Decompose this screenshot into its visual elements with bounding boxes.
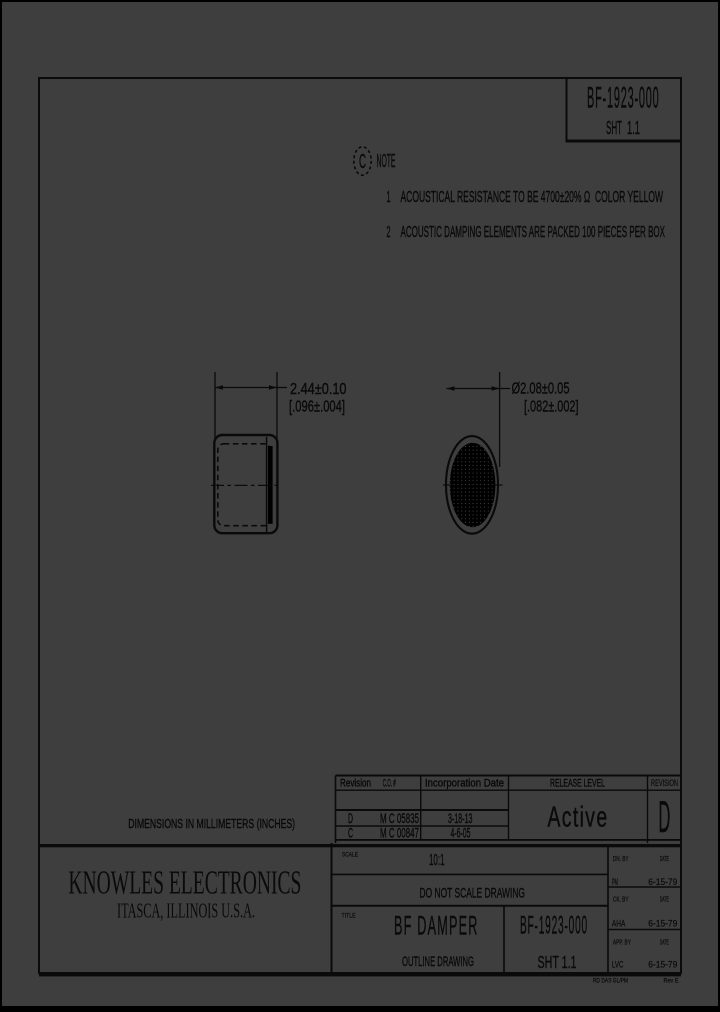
svg-text:2.44±0.10: 2.44±0.10 bbox=[290, 380, 347, 398]
svg-text:DATE: DATE bbox=[660, 895, 669, 904]
svg-text:M C 05835: M C 05835 bbox=[380, 811, 419, 826]
svg-text:BF DAMPER: BF DAMPER bbox=[394, 909, 479, 940]
svg-text:RD DAS GL/PM: RD DAS GL/PM bbox=[593, 977, 628, 984]
svg-text:ACOUSTICAL RESISTANCE TO BE 47: ACOUSTICAL RESISTANCE TO BE 4700±20% Ω C… bbox=[401, 188, 664, 206]
svg-text:2: 2 bbox=[387, 223, 391, 241]
svg-text:APP. BY: APP. BY bbox=[613, 938, 631, 947]
svg-text:Ø2.08±0.05: Ø2.08±0.05 bbox=[512, 380, 570, 398]
svg-text:PM: PM bbox=[612, 877, 618, 888]
svg-text:Incorporation Date: Incorporation Date bbox=[425, 778, 504, 790]
svg-text:SHT 1.1: SHT 1.1 bbox=[538, 952, 577, 972]
svg-text:C: C bbox=[359, 151, 366, 173]
svg-text:AHA: AHA bbox=[612, 918, 626, 929]
svg-text:1.1: 1.1 bbox=[627, 117, 640, 138]
svg-text:D: D bbox=[348, 811, 353, 826]
svg-text:M C 00847: M C 00847 bbox=[380, 826, 419, 841]
svg-text:OUTLINE DRAWING: OUTLINE DRAWING bbox=[402, 954, 474, 969]
svg-text:LVC: LVC bbox=[612, 960, 624, 971]
svg-text:6-15-79: 6-15-79 bbox=[648, 877, 677, 888]
svg-text:DATE: DATE bbox=[660, 938, 669, 947]
svg-text:C: C bbox=[348, 826, 353, 841]
svg-text:DO NOT SCALE DRAWING: DO NOT SCALE DRAWING bbox=[420, 886, 526, 901]
svg-text:REVISION: REVISION bbox=[651, 778, 678, 789]
svg-text:BF-1923-000: BF-1923-000 bbox=[587, 82, 660, 115]
svg-text:KNOWLES ELECTRONICS: KNOWLES ELECTRONICS bbox=[68, 865, 301, 902]
svg-text:ACOUSTIC DAMPING ELEMENTS ARE: ACOUSTIC DAMPING ELEMENTS ARE PACKED 100… bbox=[401, 223, 666, 241]
svg-text:Rev E: Rev E bbox=[664, 977, 679, 984]
svg-text:3-18-13: 3-18-13 bbox=[448, 811, 473, 826]
svg-text:4-6-05: 4-6-05 bbox=[451, 826, 471, 841]
svg-text:DIMENSIONS IN MILLIMETERS (INC: DIMENSIONS IN MILLIMETERS (INCHES) bbox=[128, 816, 295, 831]
svg-text:Active: Active bbox=[548, 802, 609, 834]
svg-text:TITLE: TITLE bbox=[342, 912, 356, 919]
svg-text:6-15-79: 6-15-79 bbox=[648, 960, 677, 971]
svg-text:NOTE: NOTE bbox=[377, 151, 396, 171]
svg-text:RELEASE LEVEL: RELEASE LEVEL bbox=[550, 778, 605, 790]
svg-text:BF-1923-000: BF-1923-000 bbox=[520, 912, 588, 940]
svg-text:6-15-79: 6-15-79 bbox=[648, 918, 677, 929]
svg-text:ITASCA, ILLINOIS U.S.A.: ITASCA, ILLINOIS U.S.A. bbox=[117, 901, 255, 923]
svg-text:D: D bbox=[658, 793, 670, 842]
svg-text:Revision: Revision bbox=[340, 778, 371, 790]
svg-text:SCALE: SCALE bbox=[342, 852, 358, 859]
svg-text:DATE: DATE bbox=[660, 854, 669, 863]
svg-text:DN. BY: DN. BY bbox=[613, 854, 629, 863]
svg-text:1: 1 bbox=[387, 188, 391, 206]
svg-text:[.082±.002]: [.082±.002] bbox=[524, 398, 579, 416]
svg-text:[.096±.004]: [.096±.004] bbox=[289, 398, 345, 416]
svg-text:C.O. #: C.O. # bbox=[383, 778, 396, 790]
svg-text:10:1: 10:1 bbox=[429, 852, 445, 869]
svg-text:SHT: SHT bbox=[606, 117, 622, 138]
svg-text:CK. BY: CK. BY bbox=[613, 895, 629, 904]
